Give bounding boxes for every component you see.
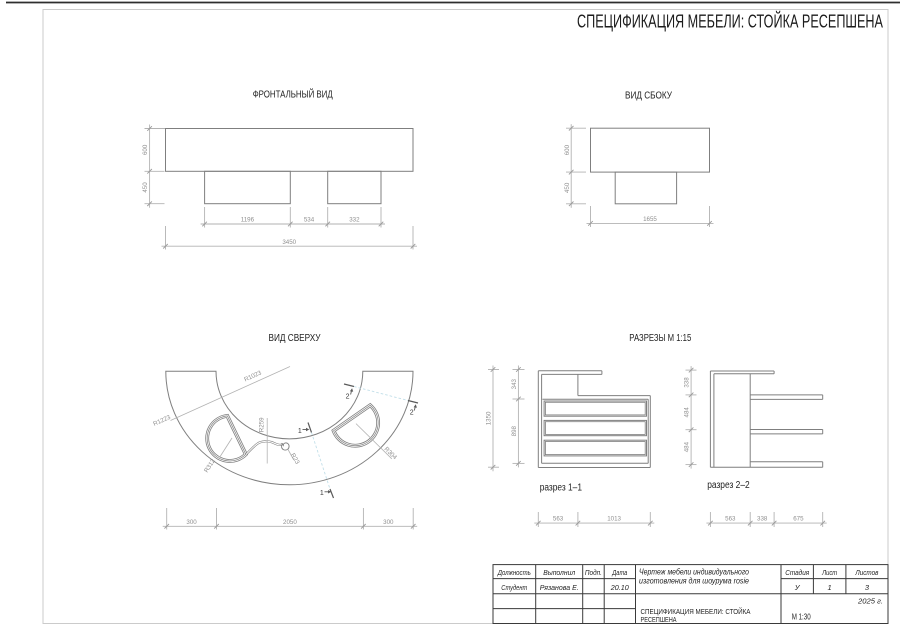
- svg-text:338: 338: [757, 516, 768, 523]
- svg-text:563: 563: [553, 516, 564, 523]
- svg-text:R259: R259: [259, 417, 266, 432]
- svg-text:Стадия: Стадия: [785, 568, 809, 577]
- svg-text:1655: 1655: [643, 216, 657, 223]
- svg-text:2050: 2050: [283, 519, 297, 526]
- svg-text:300: 300: [383, 519, 394, 526]
- svg-text:338: 338: [684, 377, 691, 388]
- svg-text:Лист: Лист: [821, 568, 837, 577]
- svg-text:563: 563: [725, 516, 736, 523]
- svg-text:450: 450: [564, 182, 571, 193]
- svg-text:1: 1: [298, 428, 302, 435]
- svg-text:Должность: Должность: [497, 568, 531, 577]
- svg-text:ФРОНТАЛЬНЫЙ ВИД: ФРОНТАЛЬНЫЙ ВИД: [253, 88, 333, 101]
- svg-text:Подп.: Подп.: [585, 568, 602, 577]
- svg-text:484: 484: [684, 441, 691, 452]
- svg-text:ВИД СВЕРХУ: ВИД СВЕРХУ: [269, 333, 322, 344]
- svg-text:СПЕЦИФИКАЦИЯ МЕБЕЛИ: СТОЙКА РЕ: СПЕЦИФИКАЦИЯ МЕБЕЛИ: СТОЙКА РЕСЕПШЕНА: [577, 11, 883, 32]
- svg-text:1196: 1196: [241, 217, 255, 224]
- svg-text:РАЗРЕЗЫ М 1:15: РАЗРЕЗЫ М 1:15: [629, 333, 691, 344]
- svg-text:2: 2: [346, 394, 350, 401]
- svg-text:Дата: Дата: [612, 568, 628, 577]
- svg-text:Выполнил: Выполнил: [543, 568, 576, 577]
- svg-text:20.10: 20.10: [610, 583, 630, 592]
- svg-text:2: 2: [410, 410, 414, 417]
- svg-text:534: 534: [304, 217, 315, 224]
- svg-text:675: 675: [793, 516, 804, 523]
- svg-text:3450: 3450: [282, 239, 296, 246]
- svg-text:600: 600: [564, 144, 571, 155]
- svg-text:Чертеж мебели индивидуального: Чертеж мебели индивидуального: [639, 568, 750, 577]
- svg-text:450: 450: [142, 182, 149, 193]
- svg-text:1: 1: [828, 583, 832, 592]
- svg-text:ВИД СБОКУ: ВИД СБОКУ: [625, 91, 673, 102]
- svg-text:1: 1: [320, 490, 324, 497]
- svg-text:Листов: Листов: [855, 568, 879, 577]
- svg-text:Студент: Студент: [501, 583, 527, 592]
- svg-text:изготовления для шоурума rosie: изготовления для шоурума rosie: [639, 577, 750, 586]
- svg-text:300: 300: [186, 519, 197, 526]
- svg-text:484: 484: [684, 407, 691, 418]
- svg-text:1013: 1013: [607, 516, 621, 523]
- svg-text:332: 332: [349, 217, 360, 224]
- svg-text:2025 г.: 2025 г.: [857, 597, 883, 606]
- svg-text:РЕСЕПШЕНА: РЕСЕПШЕНА: [641, 615, 677, 624]
- svg-text:600: 600: [142, 144, 149, 155]
- svg-text:898: 898: [511, 425, 518, 436]
- svg-text:разрез 2–2: разрез 2–2: [707, 480, 750, 491]
- svg-text:разрез 1–1: разрез 1–1: [540, 483, 583, 494]
- svg-text:Рязанова Е.: Рязанова Е.: [540, 583, 579, 592]
- svg-text:1350: 1350: [486, 411, 493, 425]
- svg-text:343: 343: [511, 378, 518, 389]
- svg-text:М 1:30: М 1:30: [792, 613, 811, 622]
